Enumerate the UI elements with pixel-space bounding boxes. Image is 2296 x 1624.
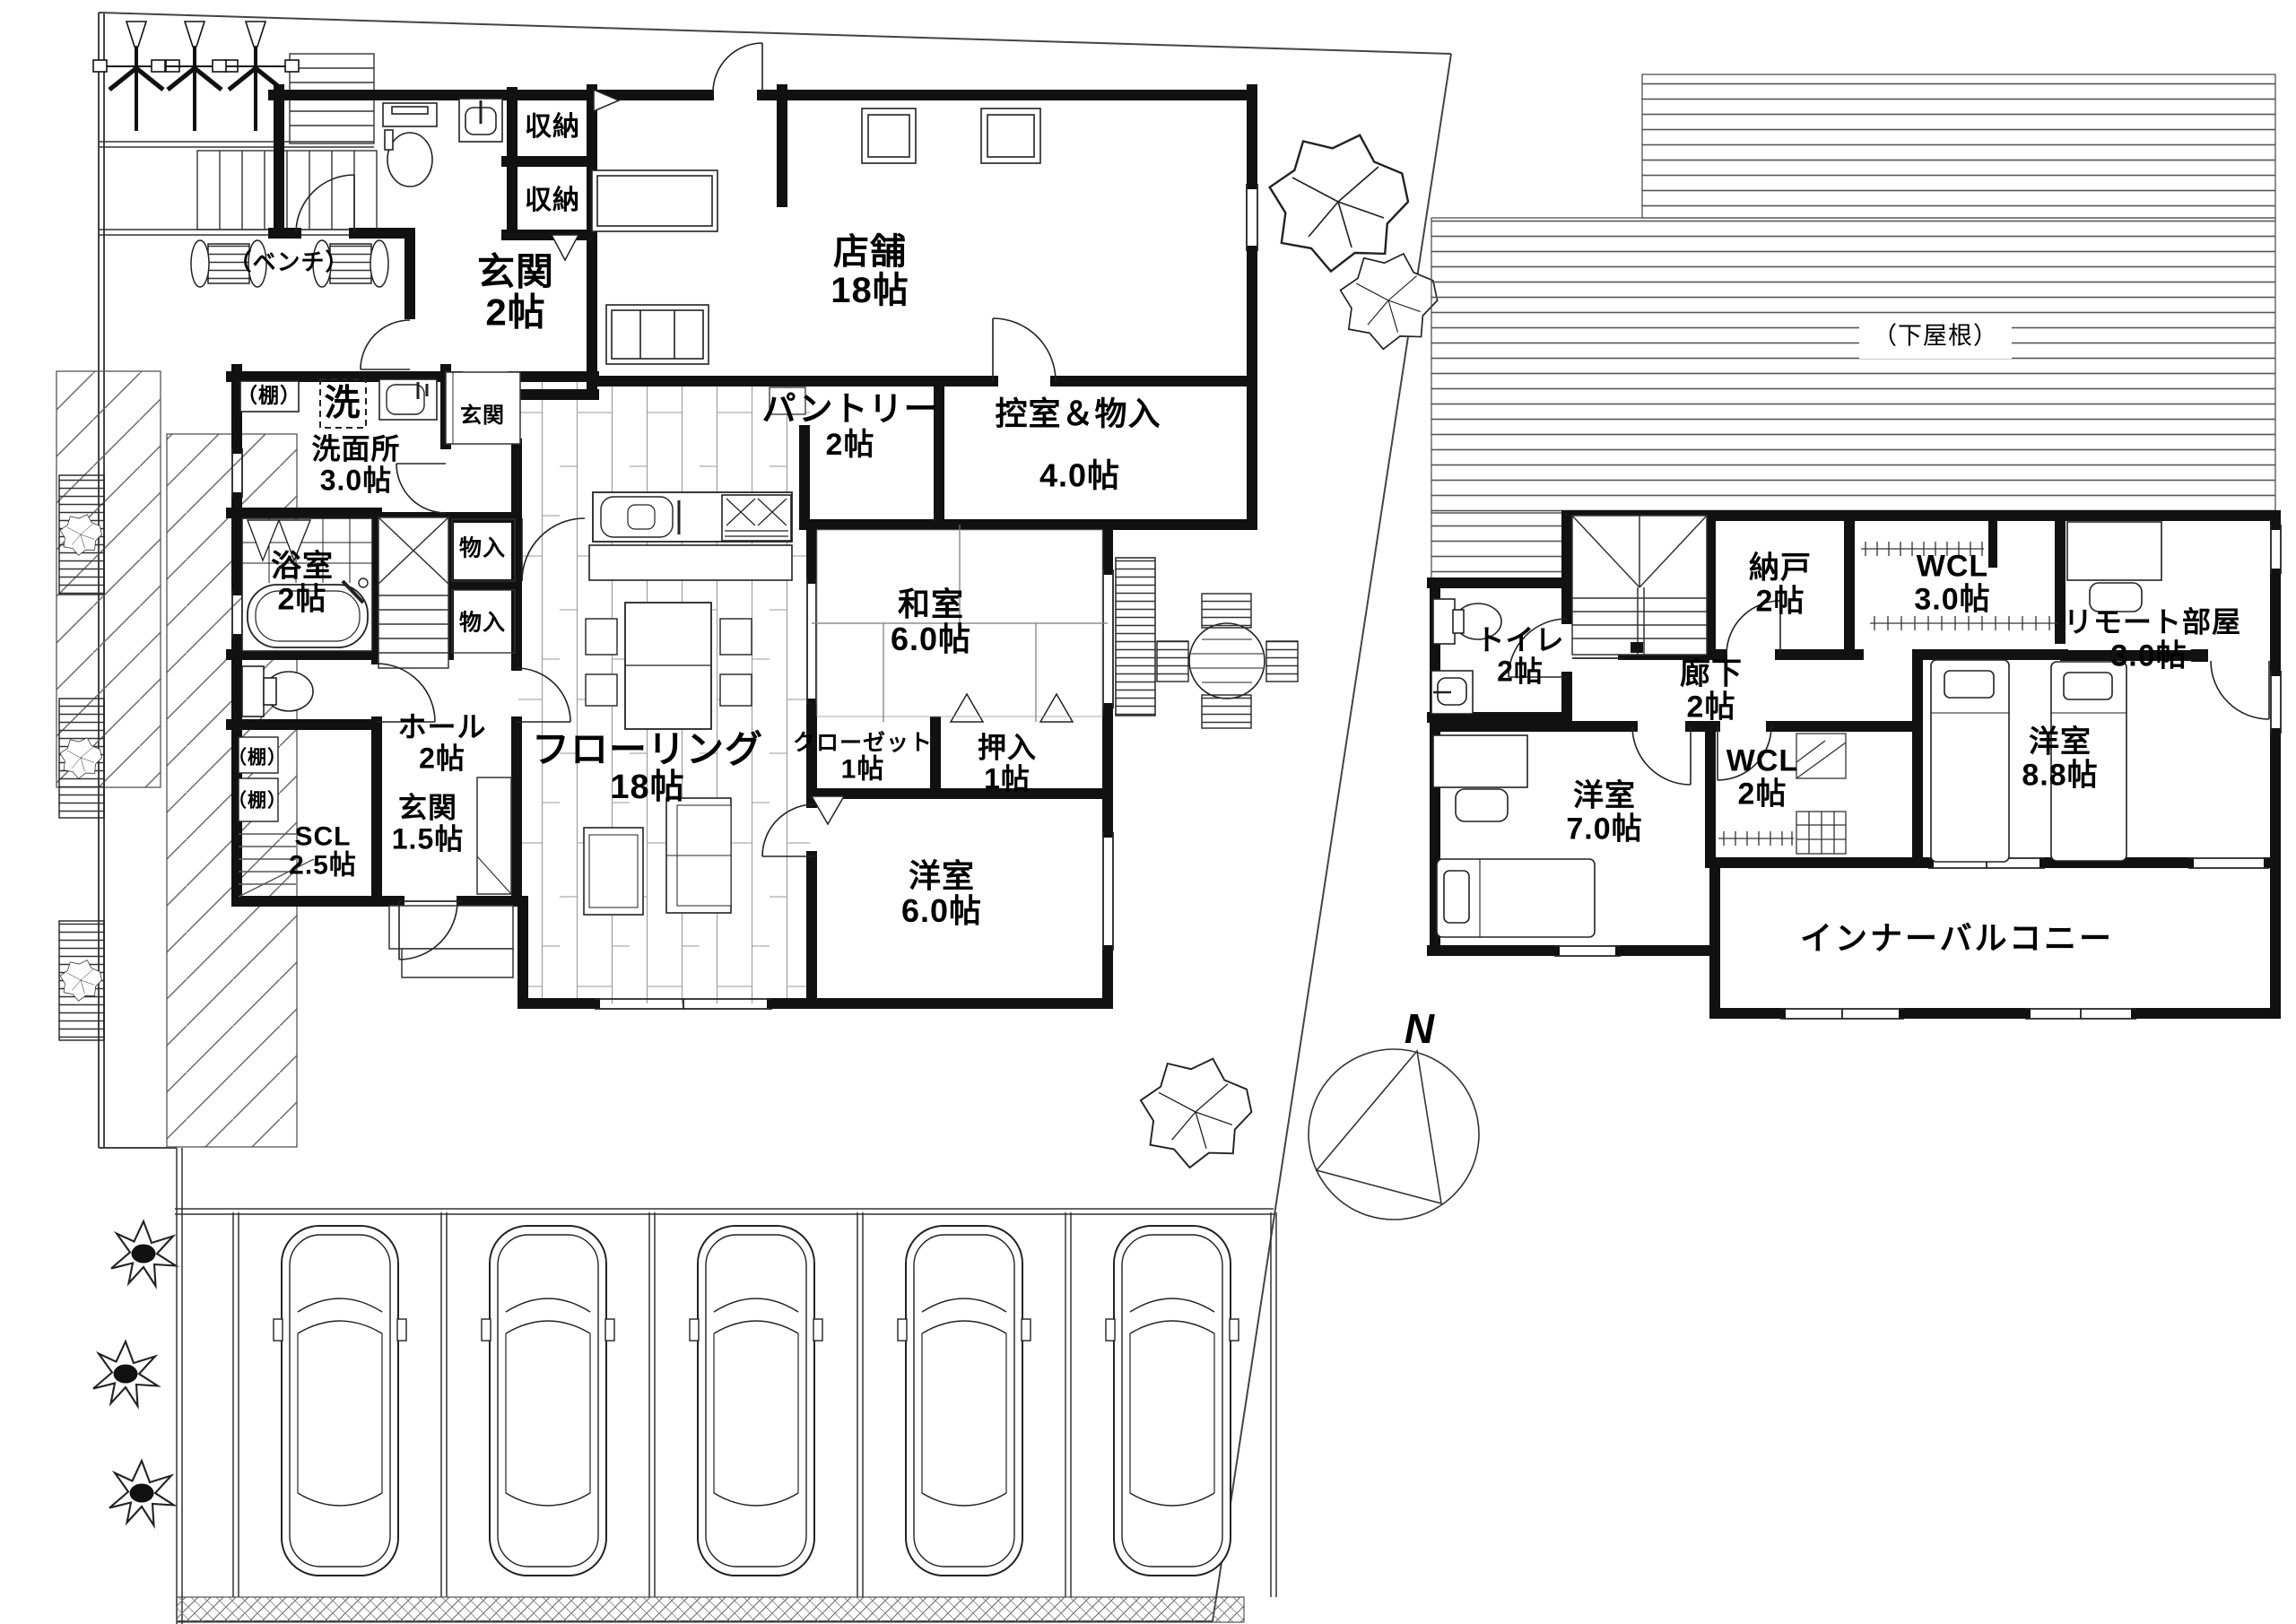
- bench-label: （ベンチ）: [228, 249, 349, 274]
- closet-label-mono-2: 物入: [459, 612, 506, 636]
- room-label-1f-washitsu: 和室6.0帖: [891, 587, 971, 657]
- room-label-2f-remote-name: リモート部屋: [2064, 607, 2241, 638]
- shelf-label-scl-1: （棚）: [228, 749, 287, 769]
- north-label: N: [1405, 1007, 1435, 1052]
- shop-fixtures: [592, 109, 1040, 364]
- room-label-1f-oshiire: 押入1帖: [978, 732, 1037, 794]
- room-label-1f-hall: ホール2帖: [397, 711, 486, 773]
- shelf-label-washroom: （棚）: [237, 385, 301, 407]
- kitchen: [589, 492, 792, 580]
- room-label-1f-closet: クローゼット1帖: [793, 731, 933, 784]
- room-label-1f-scl: SCL2.5帖: [289, 823, 357, 881]
- room-label-1f-genkan15: 玄関1.5帖: [392, 792, 465, 854]
- gravel-strip: [177, 1597, 1244, 1622]
- room-label-1f-hikae-name: 控室＆物入: [995, 397, 1161, 432]
- closet-label-shuno-2: 収納: [525, 187, 580, 215]
- cars: [274, 1226, 1239, 1576]
- room-label-1f-pantry: パントリー2帖: [762, 392, 939, 462]
- room-label-1f-yokushitsu: 浴室2帖: [271, 550, 334, 615]
- room-label-1f-senmenjo: 洗面所3.0帖: [311, 433, 400, 495]
- closet-label-mono-1: 物入: [459, 537, 506, 561]
- stairs-2f: [1572, 516, 1707, 655]
- room-label-1f-tenpo: 店舗18帖: [831, 233, 909, 310]
- room-label-1f-flooring: フローリング18帖: [532, 729, 763, 806]
- room-label-2f-wcl3: WCL3.0帖: [1914, 550, 1990, 615]
- sapling-trees: [93, 22, 299, 131]
- room-label-2f-remote-size: 3.0帖: [2110, 640, 2187, 673]
- closet-label-shuno-1: 収納: [525, 113, 580, 142]
- floor-plan-canvas: （ベンチ） 収納 収納 玄関2帖 店舗18帖 玄関 パントリー2帖 控室＆物入 …: [0, 0, 2296, 1624]
- lower-roof-label: （下屋根）: [1873, 323, 1998, 349]
- room-label-1f-yoshitsu6: 洋室6.0帖: [901, 859, 982, 929]
- room-label-1f-hikae-size: 4.0帖: [1039, 459, 1120, 494]
- room-label-1f-genkan2: 玄関2帖: [477, 252, 554, 334]
- porch-steps: [389, 906, 513, 977]
- laundry-label: 洗: [325, 384, 361, 422]
- lower-roof-hatch: [1431, 74, 2275, 578]
- room-label-2f-toilet: トイレ2帖: [1475, 624, 1564, 686]
- room-label-2f-yoshitsu7: 洋室7.0帖: [1566, 779, 1642, 845]
- patio-set: [1157, 594, 1298, 728]
- stairs-1f: [378, 517, 448, 668]
- toilet-1f: [242, 666, 313, 716]
- entry-step-label: 玄関: [460, 404, 505, 428]
- shutter-box: [1116, 558, 1155, 716]
- shelf-label-scl-2: （棚）: [228, 792, 287, 812]
- remote-room-desk: [2067, 522, 2161, 612]
- room-label-2f-wcl2: WCL2帖: [1726, 744, 1798, 810]
- room-label-2f-balcony: インナーバルコニー: [1800, 922, 2114, 957]
- north-compass: [1309, 1049, 1479, 1220]
- room-label-2f-nando: 納戸2帖: [1749, 551, 1812, 617]
- room-label-2f-rouka: 廊下2帖: [1680, 657, 1743, 723]
- room-label-2f-yoshitsu88: 洋室8.8帖: [2022, 725, 2098, 791]
- plan-linework: [0, 0, 2296, 1624]
- flower-icons: [93, 1221, 176, 1525]
- shop-toilet-room: [383, 99, 502, 187]
